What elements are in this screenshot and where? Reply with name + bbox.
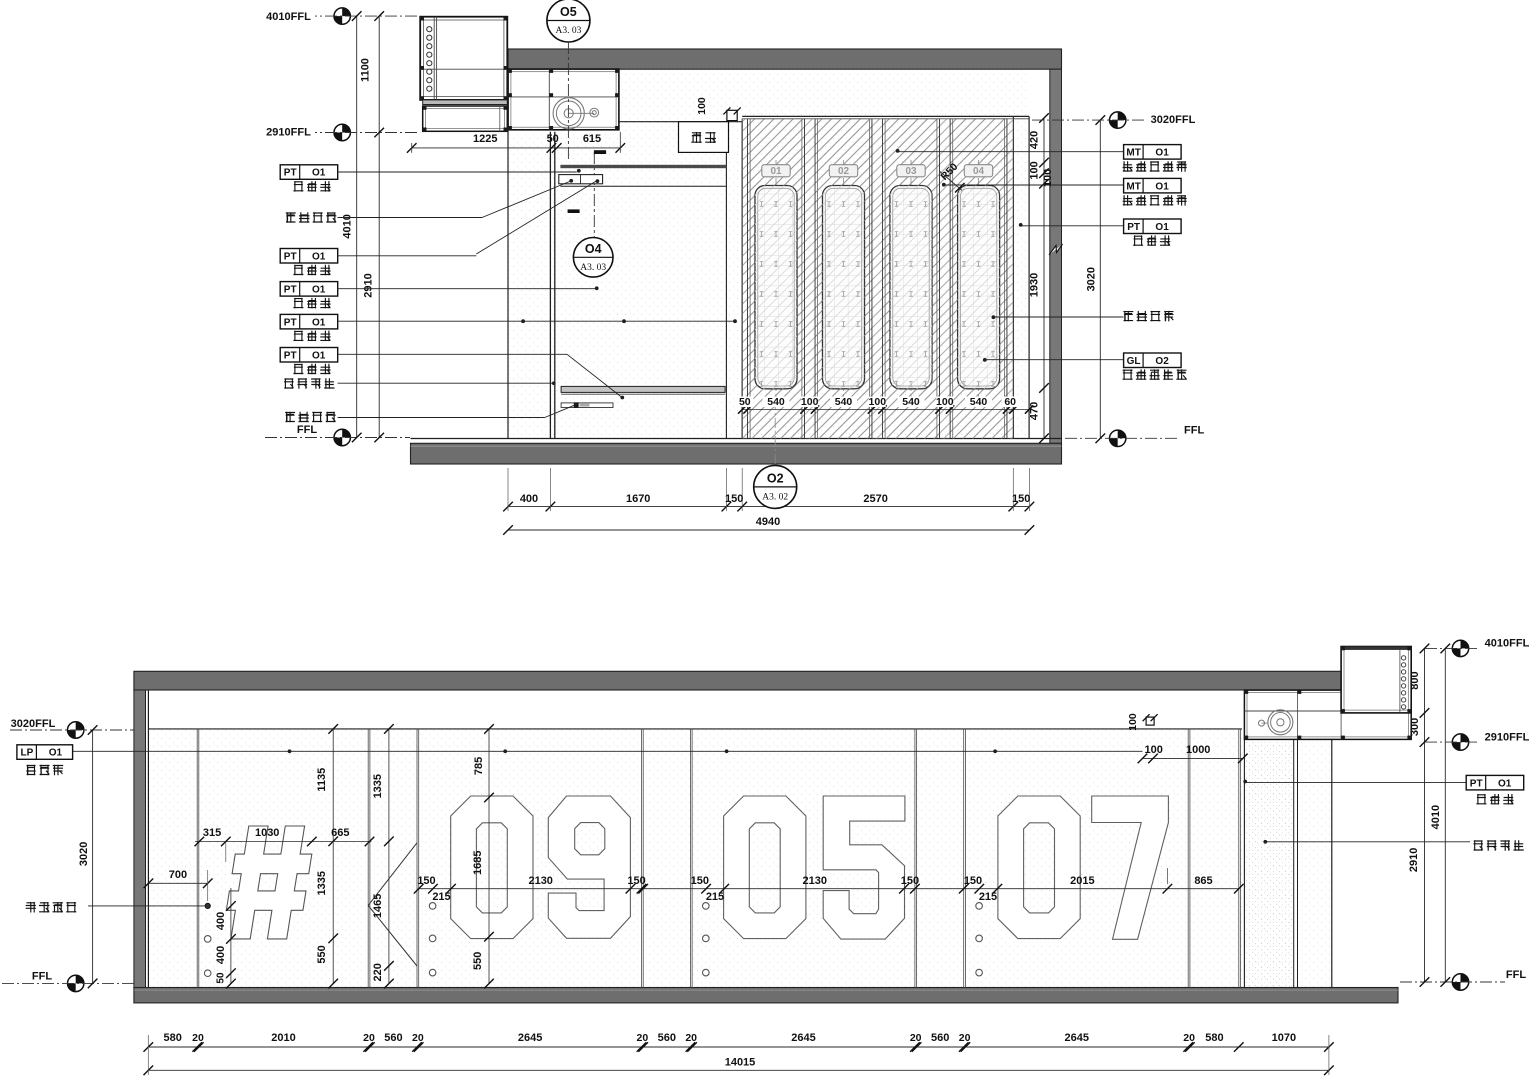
svg-text:1685: 1685 <box>472 851 484 875</box>
svg-text:O1: O1 <box>1155 181 1169 192</box>
svg-text:A3. 03: A3. 03 <box>580 263 606 273</box>
svg-text:2645: 2645 <box>791 1032 815 1044</box>
svg-text:FFL: FFL <box>1506 969 1526 981</box>
svg-text:2645: 2645 <box>1065 1032 1089 1044</box>
svg-text:1225: 1225 <box>473 133 497 145</box>
svg-text:3020FFL: 3020FFL <box>1151 114 1196 126</box>
svg-text:FFL: FFL <box>1184 425 1204 437</box>
svg-text:MT: MT <box>1126 181 1140 192</box>
svg-text:O5: O5 <box>560 5 577 19</box>
svg-text:865: 865 <box>1194 875 1212 887</box>
svg-text:400: 400 <box>520 493 538 505</box>
svg-text:50: 50 <box>739 396 751 408</box>
svg-text:100: 100 <box>801 396 819 408</box>
svg-text:20: 20 <box>192 1032 204 1044</box>
svg-text:150: 150 <box>691 875 709 887</box>
svg-text:150: 150 <box>1012 493 1030 505</box>
svg-text:470: 470 <box>1028 402 1040 420</box>
svg-text:150: 150 <box>725 493 743 505</box>
svg-text:O1: O1 <box>312 317 326 328</box>
svg-text:2130: 2130 <box>803 875 827 887</box>
svg-text:4010FFL: 4010FFL <box>1485 638 1530 650</box>
svg-text:150: 150 <box>627 875 645 887</box>
svg-text:580: 580 <box>164 1032 182 1044</box>
svg-text:04: 04 <box>973 166 985 177</box>
svg-text:PT: PT <box>1470 778 1483 789</box>
svg-text:A3. 02: A3. 02 <box>762 492 788 502</box>
svg-text:1000: 1000 <box>1186 744 1210 756</box>
svg-text:4940: 4940 <box>756 516 780 528</box>
svg-text:100: 100 <box>1127 713 1139 731</box>
svg-text:580: 580 <box>1205 1032 1223 1044</box>
svg-text:O1: O1 <box>312 285 326 296</box>
svg-text:400: 400 <box>215 912 227 930</box>
svg-text:50: 50 <box>216 972 227 984</box>
svg-text:2910: 2910 <box>363 273 375 297</box>
svg-text:20: 20 <box>685 1032 697 1044</box>
svg-text:2910FFL: 2910FFL <box>1485 732 1530 744</box>
svg-text:O1: O1 <box>312 350 326 361</box>
svg-text:220: 220 <box>372 963 384 981</box>
svg-text:50: 50 <box>547 133 559 145</box>
svg-text:60: 60 <box>1004 396 1016 408</box>
svg-text:100: 100 <box>936 396 954 408</box>
svg-text:4010: 4010 <box>1430 805 1442 829</box>
svg-text:20: 20 <box>637 1032 649 1044</box>
svg-text:560: 560 <box>384 1032 402 1044</box>
svg-text:3020: 3020 <box>1086 267 1098 291</box>
svg-text:PT: PT <box>284 285 297 296</box>
svg-text:MT: MT <box>1126 148 1140 159</box>
svg-text:3020FFL: 3020FFL <box>11 718 56 730</box>
svg-text:PT: PT <box>284 251 297 262</box>
svg-text:3020: 3020 <box>78 842 90 866</box>
svg-text:20: 20 <box>1183 1032 1195 1044</box>
svg-text:O2: O2 <box>1155 356 1169 367</box>
svg-text:1030: 1030 <box>255 827 279 839</box>
svg-text:300: 300 <box>1409 718 1421 736</box>
svg-text:O4: O4 <box>585 242 602 256</box>
svg-text:FFL: FFL <box>297 424 317 436</box>
svg-text:02: 02 <box>838 166 850 177</box>
svg-text:1335: 1335 <box>372 774 384 798</box>
svg-text:540: 540 <box>835 396 853 408</box>
svg-text:100: 100 <box>1028 161 1040 179</box>
svg-text:550: 550 <box>472 952 484 970</box>
svg-text:150: 150 <box>417 875 435 887</box>
svg-text:560: 560 <box>931 1032 949 1044</box>
svg-text:665: 665 <box>331 827 349 839</box>
svg-text:20: 20 <box>412 1032 424 1044</box>
svg-text:785: 785 <box>473 757 485 775</box>
svg-text:560: 560 <box>658 1032 676 1044</box>
svg-text:GL: GL <box>1127 356 1141 367</box>
svg-text:100: 100 <box>1042 169 1054 187</box>
svg-text:4010FFL: 4010FFL <box>266 11 311 23</box>
svg-text:315: 315 <box>203 827 221 839</box>
svg-text:540: 540 <box>902 396 920 408</box>
svg-text:01: 01 <box>770 166 782 177</box>
svg-text:400: 400 <box>215 946 227 964</box>
svg-text:PT: PT <box>284 317 297 328</box>
svg-text:03: 03 <box>905 166 917 177</box>
svg-text:FFL: FFL <box>32 971 52 983</box>
svg-text:O1: O1 <box>312 168 326 179</box>
svg-text:O1: O1 <box>49 748 63 759</box>
svg-text:800: 800 <box>1409 671 1421 689</box>
svg-text:700: 700 <box>169 869 187 881</box>
svg-text:540: 540 <box>970 396 988 408</box>
svg-text:PT: PT <box>284 168 297 179</box>
svg-text:2570: 2570 <box>863 493 887 505</box>
svg-text:2010: 2010 <box>271 1032 295 1044</box>
svg-text:2645: 2645 <box>518 1032 542 1044</box>
svg-text:2910: 2910 <box>1408 848 1420 872</box>
svg-text:215: 215 <box>432 891 450 903</box>
svg-text:2910FFL: 2910FFL <box>266 127 311 139</box>
svg-text:1335: 1335 <box>316 871 328 895</box>
svg-text:20: 20 <box>910 1032 922 1044</box>
svg-text:100: 100 <box>1145 744 1163 756</box>
svg-text:1135: 1135 <box>316 768 328 792</box>
svg-text:100: 100 <box>869 396 887 408</box>
svg-text:420: 420 <box>1028 131 1040 149</box>
svg-text:1670: 1670 <box>626 493 650 505</box>
svg-text:14015: 14015 <box>725 1056 756 1068</box>
svg-text:1930: 1930 <box>1028 273 1040 297</box>
svg-text:PT: PT <box>1127 222 1140 233</box>
svg-text:2130: 2130 <box>528 875 552 887</box>
svg-text:215: 215 <box>706 891 724 903</box>
svg-text:100: 100 <box>696 97 708 115</box>
svg-text:1100: 1100 <box>360 58 372 82</box>
svg-text:O1: O1 <box>312 251 326 262</box>
svg-text:O2: O2 <box>767 471 784 485</box>
svg-text:A3. 03: A3. 03 <box>555 26 581 36</box>
svg-text:LP: LP <box>21 748 34 759</box>
svg-text:550: 550 <box>316 945 328 963</box>
svg-text:O1: O1 <box>1155 148 1169 159</box>
svg-text:1070: 1070 <box>1272 1032 1296 1044</box>
svg-text:540: 540 <box>767 396 785 408</box>
svg-text:150: 150 <box>901 875 919 887</box>
svg-text:150: 150 <box>964 875 982 887</box>
svg-text:215: 215 <box>979 891 997 903</box>
svg-text:1465: 1465 <box>372 894 384 918</box>
svg-text:PT: PT <box>284 350 297 361</box>
svg-text:2015: 2015 <box>1070 875 1094 887</box>
svg-text:O1: O1 <box>1498 778 1512 789</box>
svg-text:20: 20 <box>363 1032 375 1044</box>
svg-text:O1: O1 <box>1155 222 1169 233</box>
svg-text:615: 615 <box>583 133 601 145</box>
svg-text:20: 20 <box>959 1032 971 1044</box>
